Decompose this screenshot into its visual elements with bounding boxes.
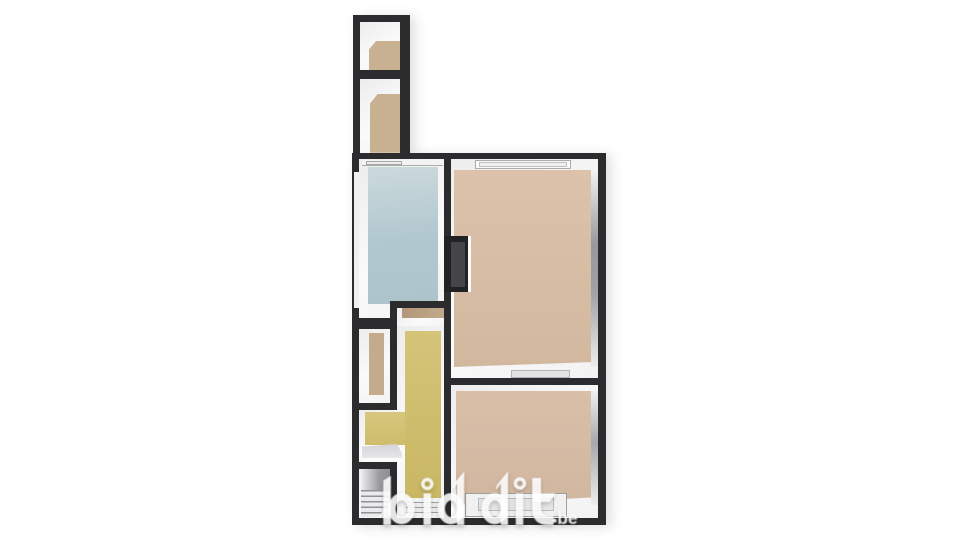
svg-text:be: be bbox=[557, 508, 578, 528]
